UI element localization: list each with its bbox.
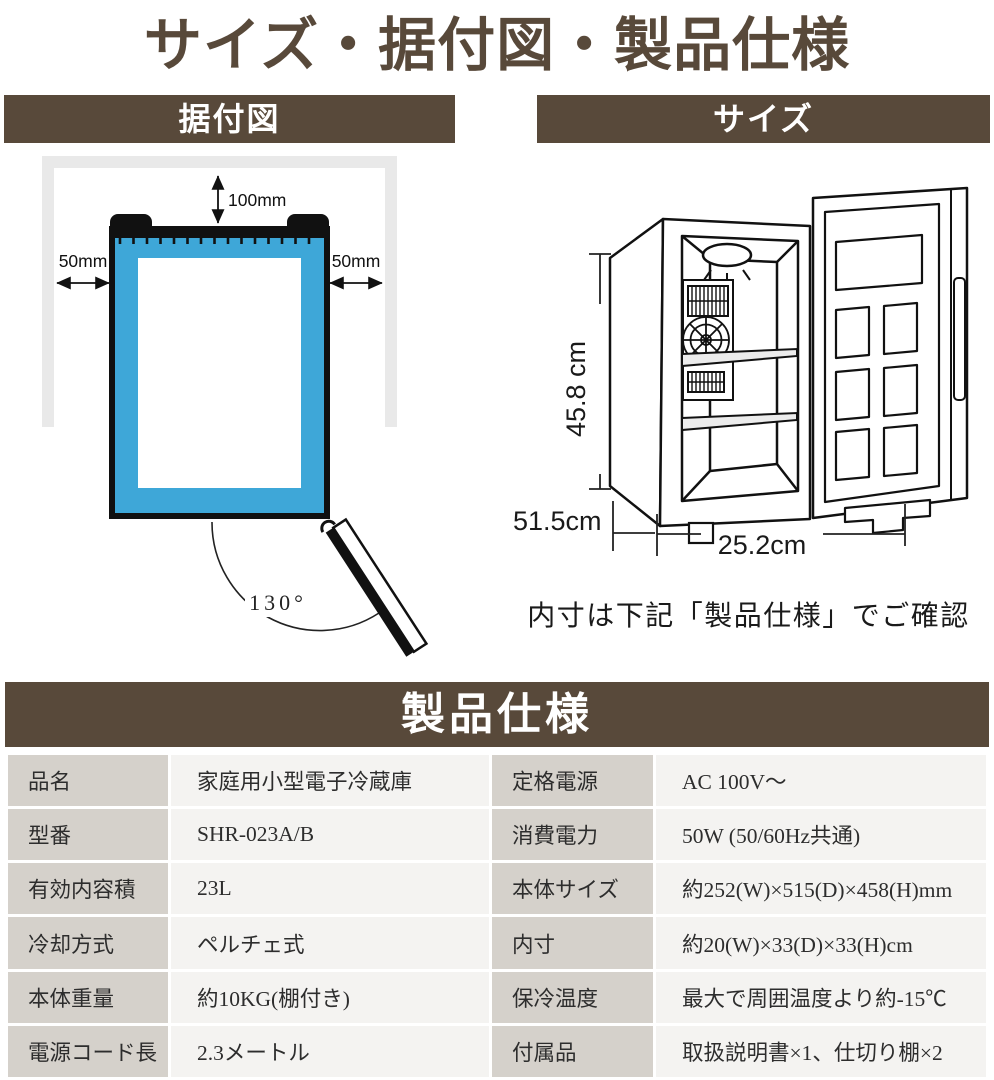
door-panel <box>333 520 426 652</box>
spec-value: 23L <box>171 863 489 914</box>
spec-label: 消費電力 <box>492 809 653 860</box>
door-face <box>326 528 414 657</box>
door-handle <box>954 278 965 400</box>
spec-value: ペルチェ式 <box>171 917 489 968</box>
door-pocket <box>884 425 917 476</box>
installation-diagram: 100mm 50mm 50mm 130° <box>10 150 440 670</box>
left-clearance-label: 50mm <box>59 251 108 271</box>
door-pocket-top <box>836 235 922 290</box>
page-title: サイズ・据付図・製品仕様 <box>0 0 994 90</box>
height-dim-line <box>589 254 611 489</box>
spec-value: 家庭用小型電子冷蔵庫 <box>171 755 489 806</box>
spec-value: 約10KG(棚付き) <box>171 972 489 1023</box>
fridge-top-view <box>109 214 330 516</box>
spec-label: 内寸 <box>492 917 653 968</box>
height-label: 45.8 cm <box>561 341 591 437</box>
cabinet-left-side <box>610 219 663 526</box>
spec-label: 本体重量 <box>8 972 168 1023</box>
door-pocket <box>884 303 917 354</box>
door-pocket <box>836 369 869 420</box>
spec-table: 品名 家庭用小型電子冷蔵庫 定格電源 AC 100V～ 型番 SHR-023A/… <box>5 752 989 1080</box>
spec-value: 2.3メートル <box>171 1026 489 1077</box>
door-pocket <box>836 429 869 480</box>
door-pocket <box>836 307 869 358</box>
table-row: 電源コード長 2.3メートル 付属品 取扱説明書×1、仕切り棚×2 <box>8 1026 986 1077</box>
product-spec-sheet: サイズ・据付図・製品仕様 据付図 サイズ 100mm 50mm 50mm <box>0 0 994 1080</box>
right-clearance-label: 50mm <box>332 251 381 271</box>
top-clearance-label: 100mm <box>228 190 286 210</box>
spec-value: 最大で周囲温度より約-15℃ <box>656 972 986 1023</box>
spec-label: 品名 <box>8 755 168 806</box>
section-header-size: サイズ <box>537 95 990 143</box>
open-door <box>319 512 426 658</box>
table-row: 冷却方式 ペルチェ式 内寸 約20(W)×33(D)×33(H)cm <box>8 917 986 968</box>
width-label: 25.2cm <box>718 530 807 560</box>
spec-label: 電源コード長 <box>8 1026 168 1077</box>
spec-value: 約252(W)×515(D)×458(H)mm <box>656 863 986 914</box>
door-angle-label: 130° <box>249 590 307 615</box>
spec-value: 約20(W)×33(D)×33(H)cm <box>656 917 986 968</box>
vent-band <box>109 226 330 238</box>
table-row: 品名 家庭用小型電子冷蔵庫 定格電源 AC 100V～ <box>8 755 986 806</box>
table-row: 型番 SHR-023A/B 消費電力 50W (50/60Hz共通) <box>8 809 986 860</box>
front-foot <box>689 523 713 543</box>
fridge-interior <box>138 258 301 488</box>
spec-label: 型番 <box>8 809 168 860</box>
depth-label: 51.5cm <box>513 506 602 536</box>
spec-value: AC 100V～ <box>656 755 986 806</box>
section-header-specs: 製品仕様 <box>5 682 989 747</box>
size-diagram: 45.8 cm 51.5cm 25.2cm <box>505 156 994 581</box>
interior-light <box>703 244 751 266</box>
inner-size-note: 内寸は下記「製品仕様」でご確認 <box>503 594 994 634</box>
spec-value: 取扱説明書×1、仕切り棚×2 <box>656 1026 986 1077</box>
door-pocket <box>884 365 917 416</box>
spec-label: 有効内容積 <box>8 863 168 914</box>
fridge-door <box>813 188 967 533</box>
spec-label: 本体サイズ <box>492 863 653 914</box>
spec-value: SHR-023A/B <box>171 809 489 860</box>
spec-label: 冷却方式 <box>8 917 168 968</box>
spec-label: 付属品 <box>492 1026 653 1077</box>
table-row: 有効内容積 23L 本体サイズ 約252(W)×515(D)×458(H)mm <box>8 863 986 914</box>
table-row: 本体重量 約10KG(棚付き) 保冷温度 最大で周囲温度より約-15℃ <box>8 972 986 1023</box>
spec-label: 定格電源 <box>492 755 653 806</box>
spec-value: 50W (50/60Hz共通) <box>656 809 986 860</box>
spec-label: 保冷温度 <box>492 972 653 1023</box>
section-header-installation: 据付図 <box>4 95 455 143</box>
